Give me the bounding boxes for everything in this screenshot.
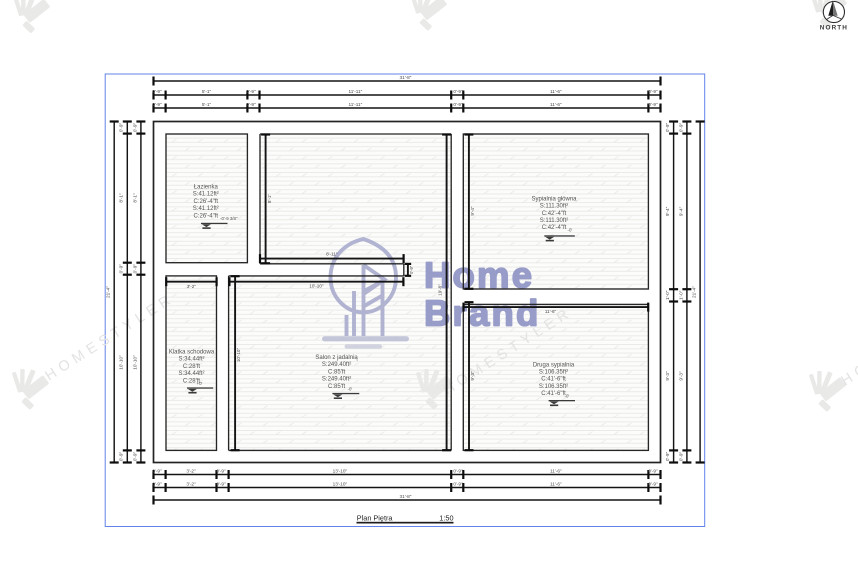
- svg-text:-0': -0': [348, 386, 353, 391]
- svg-text:11'-11": 11'-11": [348, 102, 362, 107]
- svg-text:0'-9": 0'-9": [409, 265, 414, 274]
- svg-text:8'-11": 8'-11": [326, 252, 338, 257]
- svg-text:1:50: 1:50: [439, 514, 453, 523]
- svg-text:C:85'ft: C:85'ft: [328, 369, 345, 375]
- svg-text:0'-9": 0'-9": [453, 481, 463, 486]
- svg-text:0'-9": 0'-9": [132, 123, 137, 133]
- svg-text:S:106.35ft²: S:106.35ft²: [539, 384, 568, 390]
- svg-text:Druga sypialnia: Druga sypialnia: [533, 362, 575, 368]
- svg-text:S:34.44ft²: S:34.44ft²: [178, 357, 204, 363]
- svg-text:21'-4": 21'-4": [692, 286, 697, 298]
- svg-text:Klatka schodowa: Klatka schodowa: [169, 349, 215, 355]
- svg-text:19'-8": 19'-8": [438, 284, 443, 296]
- svg-text:31'-8": 31'-8": [400, 494, 412, 499]
- svg-text:9'-4": 9'-4": [470, 206, 475, 216]
- svg-text:Brand: Brand: [424, 292, 540, 333]
- svg-text:0'-9": 0'-9": [132, 264, 137, 274]
- svg-text:10'-10": 10'-10": [132, 355, 137, 370]
- svg-text:10'-10": 10'-10": [309, 284, 324, 289]
- svg-text:Salon z jadalnią: Salon z jadalnią: [315, 355, 358, 361]
- svg-text:C:28'ft: C:28'ft: [183, 364, 200, 370]
- svg-text:C:42'-4"ft: C:42'-4"ft: [542, 211, 567, 217]
- svg-text:9'-3": 9'-3": [470, 371, 475, 381]
- svg-text:+0': +0': [197, 381, 203, 386]
- svg-text:Plan Piętra: Plan Piętra: [357, 514, 394, 523]
- svg-text:S:111.30ft²: S:111.30ft²: [540, 204, 568, 210]
- svg-text:0'-9": 0'-9": [678, 123, 683, 133]
- svg-text:11'-6": 11'-6": [550, 468, 562, 473]
- svg-text:0'-9": 0'-9": [119, 264, 124, 274]
- svg-text:13'-10": 13'-10": [333, 481, 348, 486]
- svg-text:0'-9": 0'-9": [132, 452, 137, 462]
- svg-text:0'-9": 0'-9": [152, 468, 162, 473]
- svg-text:3'-2": 3'-2": [187, 284, 197, 289]
- svg-text:3'-2": 3'-2": [186, 481, 196, 486]
- svg-text:11'-6": 11'-6": [550, 89, 562, 94]
- svg-text:0'-9": 0'-9": [665, 452, 670, 462]
- svg-text:9'-3": 9'-3": [665, 371, 670, 381]
- svg-text:8'-1": 8'-1": [267, 194, 272, 204]
- svg-text:3'-2": 3'-2": [186, 468, 196, 473]
- svg-text:C:41'-6"ft: C:41'-6"ft: [541, 391, 566, 397]
- svg-text:C:26'-4"ft: C:26'-4"ft: [193, 199, 218, 205]
- svg-text:-0'-9 3/8": -0'-9 3/8": [220, 216, 238, 221]
- svg-text:0'-9": 0'-9": [648, 89, 658, 94]
- svg-text:11'-6": 11'-6": [550, 102, 562, 107]
- svg-text:0'-9": 0'-9": [453, 89, 463, 94]
- svg-text:Sypialnia główna: Sypialnia główna: [531, 196, 577, 202]
- svg-text:0'-9": 0'-9": [665, 123, 670, 133]
- svg-text:S:111.30ft²: S:111.30ft²: [540, 218, 568, 224]
- svg-text:S:34.44ft²: S:34.44ft²: [178, 371, 204, 377]
- svg-text:0'-9": 0'-9": [152, 89, 162, 94]
- svg-text:C:41'-6"ft: C:41'-6"ft: [541, 377, 566, 383]
- svg-text:0'-9": 0'-9": [648, 468, 658, 473]
- svg-text:0'-9": 0'-9": [246, 89, 256, 94]
- svg-text:0'-9": 0'-9": [453, 102, 463, 107]
- svg-text:10'-10": 10'-10": [236, 348, 241, 363]
- svg-text:S:249.40ft²: S:249.40ft²: [322, 377, 351, 383]
- svg-text:13'-10": 13'-10": [333, 468, 348, 473]
- svg-text:9'-3": 9'-3": [678, 371, 683, 381]
- svg-text:0'-9": 0'-9": [246, 102, 256, 107]
- svg-text:-0': -0': [565, 394, 570, 399]
- svg-text:Łazienka: Łazienka: [194, 185, 219, 191]
- svg-text:0'-9": 0'-9": [648, 102, 658, 107]
- svg-text:0'-9": 0'-9": [216, 481, 226, 486]
- svg-text:10'-10": 10'-10": [119, 355, 124, 370]
- svg-text:S:41.12ft²: S:41.12ft²: [193, 206, 219, 212]
- svg-text:1'-0": 1'-0": [678, 290, 683, 300]
- svg-text:S:41.12ft²: S:41.12ft²: [193, 192, 219, 198]
- svg-text:0'-9": 0'-9": [216, 468, 226, 473]
- svg-text:21'-4": 21'-4": [106, 286, 111, 298]
- svg-text:0'-9": 0'-9": [119, 123, 124, 133]
- svg-text:0'-9": 0'-9": [453, 468, 463, 473]
- svg-text:C:85'ft: C:85'ft: [328, 384, 345, 390]
- svg-text:11'-6": 11'-6": [545, 309, 557, 314]
- svg-text:5'-1": 5'-1": [202, 102, 212, 107]
- svg-text:C:26'-4"ft: C:26'-4"ft: [193, 213, 218, 219]
- svg-text:-0': -0': [568, 228, 573, 233]
- svg-text:5'-1": 5'-1": [202, 89, 212, 94]
- svg-text:11'-6": 11'-6": [550, 481, 562, 486]
- svg-text:8'-1": 8'-1": [119, 193, 124, 203]
- svg-text:9'-4": 9'-4": [665, 206, 670, 216]
- svg-text:0'-9": 0'-9": [152, 481, 162, 486]
- svg-text:0'-9": 0'-9": [678, 452, 683, 462]
- svg-text:0'-9": 0'-9": [648, 481, 658, 486]
- svg-text:NORTH: NORTH: [820, 24, 848, 31]
- svg-text:C:42'-4"ft: C:42'-4"ft: [542, 225, 567, 231]
- svg-text:0'-9": 0'-9": [152, 102, 162, 107]
- svg-text:9'-4": 9'-4": [678, 206, 683, 216]
- svg-text:8'-1": 8'-1": [132, 193, 137, 203]
- svg-text:S:106.35ft²: S:106.35ft²: [539, 370, 568, 376]
- svg-text:11'-11": 11'-11": [348, 89, 362, 94]
- svg-text:31'-8": 31'-8": [400, 75, 412, 80]
- svg-text:S:249.40ft²: S:249.40ft²: [322, 362, 351, 368]
- svg-text:1'-0": 1'-0": [665, 290, 670, 300]
- svg-text:0'-9": 0'-9": [119, 452, 124, 462]
